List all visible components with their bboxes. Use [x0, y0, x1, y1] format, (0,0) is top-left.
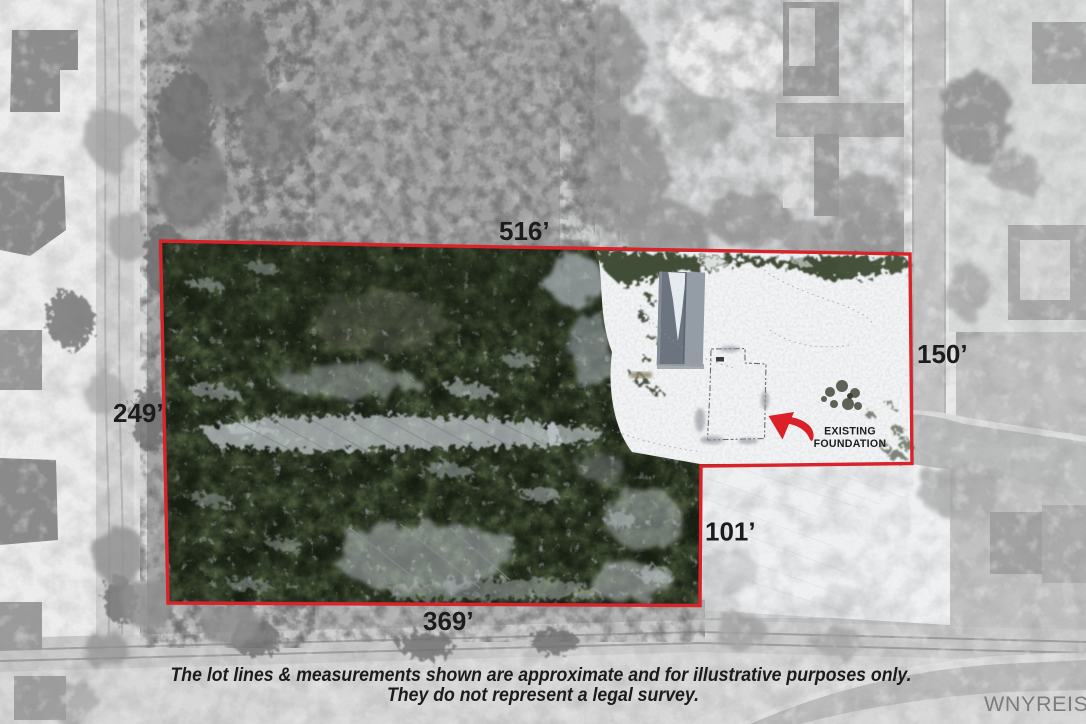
svg-text:WNYREIS: WNYREIS [984, 692, 1086, 716]
svg-text:EXISTING: EXISTING [824, 426, 876, 438]
svg-text:The lot lines & measurements s: The lot lines & measurements shown are a… [171, 665, 912, 686]
svg-text:516’: 516’ [499, 216, 550, 246]
svg-text:They do not represent a legal: They do not represent a legal survey. [387, 685, 699, 706]
svg-text:150’: 150’ [917, 339, 968, 369]
svg-text:249’: 249’ [113, 398, 164, 428]
svg-text:101’: 101’ [705, 517, 756, 547]
svg-text:369’: 369’ [423, 606, 474, 636]
svg-text:FOUNDATION: FOUNDATION [814, 438, 887, 450]
